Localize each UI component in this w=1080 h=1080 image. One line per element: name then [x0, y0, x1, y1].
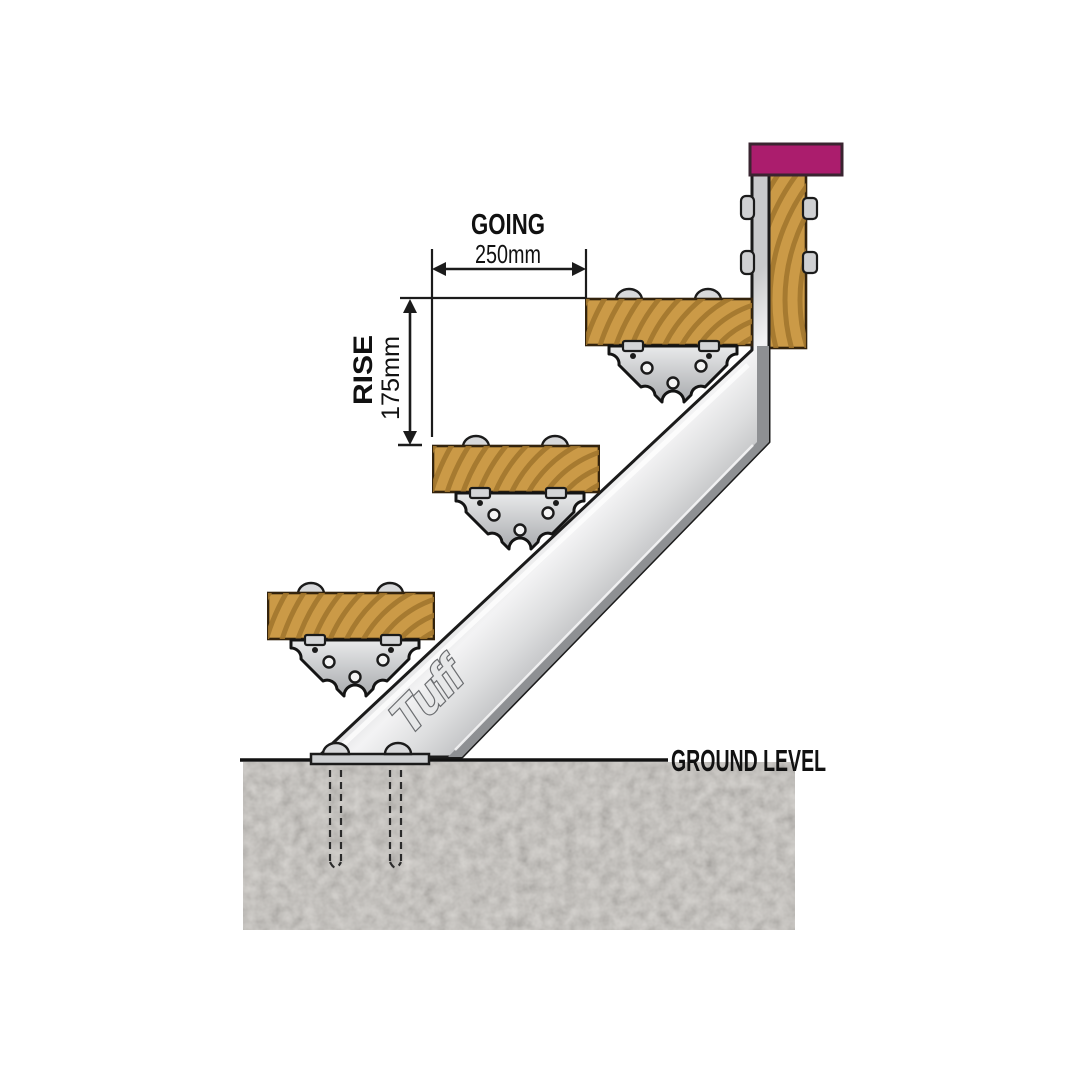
going-value: 250mm: [475, 239, 541, 269]
plate-bolt-icon: [323, 743, 349, 754]
arrowhead-up-icon: [403, 299, 417, 313]
deck-board-cap: [750, 144, 842, 175]
concrete-ground: [240, 760, 795, 930]
rise-value: 175mm: [377, 336, 405, 420]
diagram-canvas: GROUND LEVEL Tuff: [0, 0, 1080, 1080]
going-label: GOING: [471, 209, 545, 241]
plate-bolt-icon: [385, 743, 411, 754]
strap-bolt-head-icon: [741, 196, 754, 219]
ground-level-label: GROUND LEVEL: [671, 743, 826, 778]
going-dimension: [400, 249, 586, 437]
stair-stringer-diagram: GROUND LEVEL Tuff: [0, 0, 1080, 1080]
arrowhead-down-icon: [403, 431, 417, 445]
rise-label: RISE: [348, 335, 378, 405]
post-bolt-end-icon: [803, 252, 817, 273]
strap-bolt-head-icon: [741, 251, 754, 274]
post-bolt-end-icon: [803, 198, 817, 219]
arrowhead-right-icon: [572, 262, 586, 276]
arrowhead-left-icon: [432, 262, 446, 276]
